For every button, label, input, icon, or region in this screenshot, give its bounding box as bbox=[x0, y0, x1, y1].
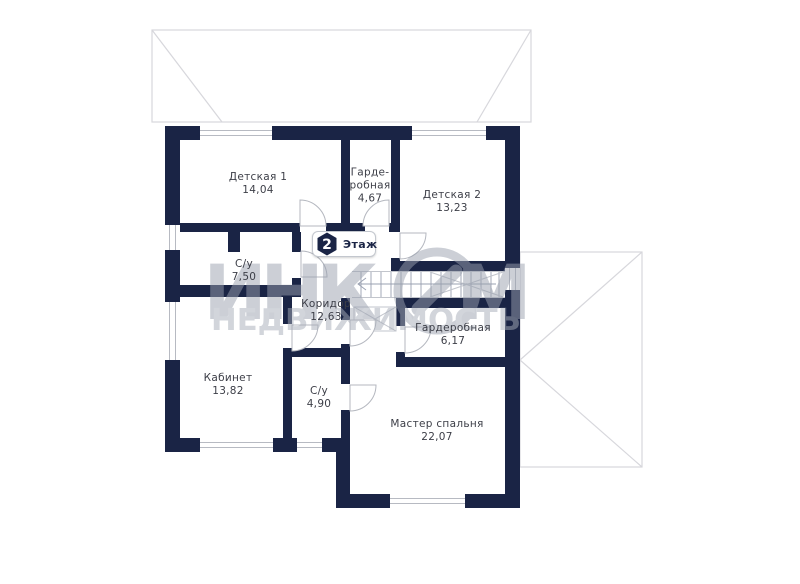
window bbox=[200, 438, 273, 452]
roof-outline-top bbox=[152, 30, 531, 122]
window bbox=[200, 126, 272, 140]
room-label-su-4-90: С/у 4,90 bbox=[307, 385, 332, 411]
room-label-su-7-50: С/у 7,50 bbox=[232, 258, 257, 284]
room-label-kabinet: Кабинет 13,82 bbox=[204, 372, 253, 398]
svg-text:2: 2 bbox=[322, 237, 332, 253]
door-su-4-90 bbox=[350, 385, 376, 411]
roof-outline-right bbox=[520, 252, 642, 467]
window bbox=[412, 126, 486, 140]
floor-plan-canvas: И Н К М НЕДВИЖИМОСТЬ Детская 1 14,04 Гар… bbox=[0, 0, 800, 584]
door-detskaya-1 bbox=[300, 200, 326, 226]
window bbox=[165, 302, 180, 360]
room-label-detskaya-1: Детская 1 14,04 bbox=[229, 171, 287, 197]
floor-number-hexagon-icon: 2 bbox=[316, 232, 338, 256]
room-label-koridor: Коридор 12,63 bbox=[301, 298, 351, 324]
floor-badge-label: Этаж bbox=[343, 238, 377, 251]
window bbox=[297, 438, 322, 452]
window bbox=[165, 225, 180, 250]
window bbox=[390, 494, 465, 508]
room-label-garderobnaya-top: Гарде- робная 4,67 bbox=[350, 167, 391, 206]
room-label-garderobnaya-master: Гардеробная 6,17 bbox=[415, 322, 491, 348]
room-label-detskaya-2: Детская 2 13,23 bbox=[423, 189, 481, 215]
floor-plan-drawing: И Н К М НЕДВИЖИМОСТЬ bbox=[0, 0, 800, 584]
room-label-master-spalnya: Мастер спальня 22,07 bbox=[390, 418, 483, 444]
floor-badge: 2 Этаж bbox=[312, 231, 376, 257]
